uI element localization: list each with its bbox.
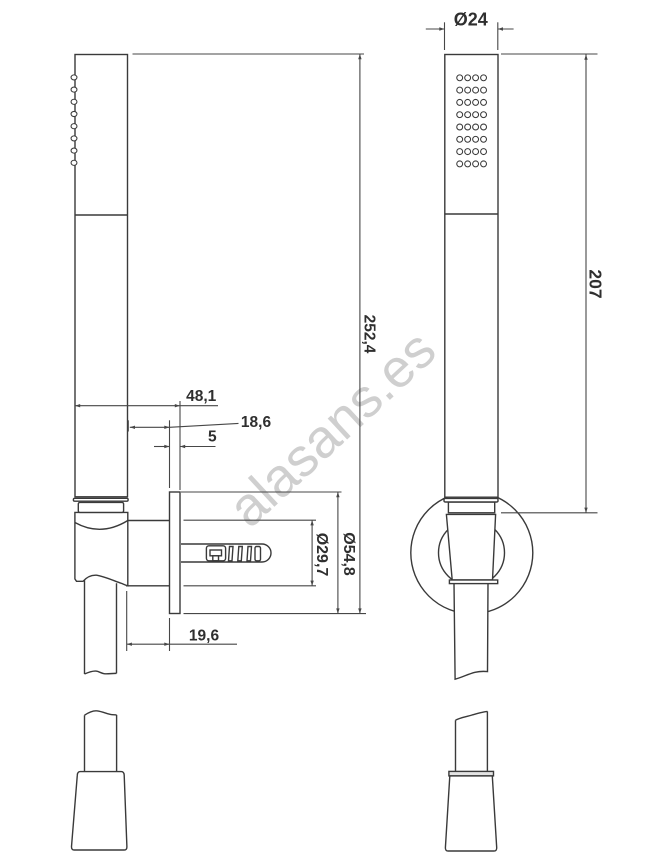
svg-text:18,6: 18,6 [241,414,272,431]
svg-text:5: 5 [208,429,217,446]
svg-text:Ø29,7: Ø29,7 [313,533,330,577]
svg-text:48,1: 48,1 [186,388,217,405]
svg-text:Ø54,8: Ø54,8 [340,532,357,576]
svg-text:19,6: 19,6 [189,628,220,645]
svg-text:207: 207 [586,269,606,298]
svg-text:252,4: 252,4 [361,315,378,354]
svg-text:Ø24: Ø24 [454,10,488,30]
